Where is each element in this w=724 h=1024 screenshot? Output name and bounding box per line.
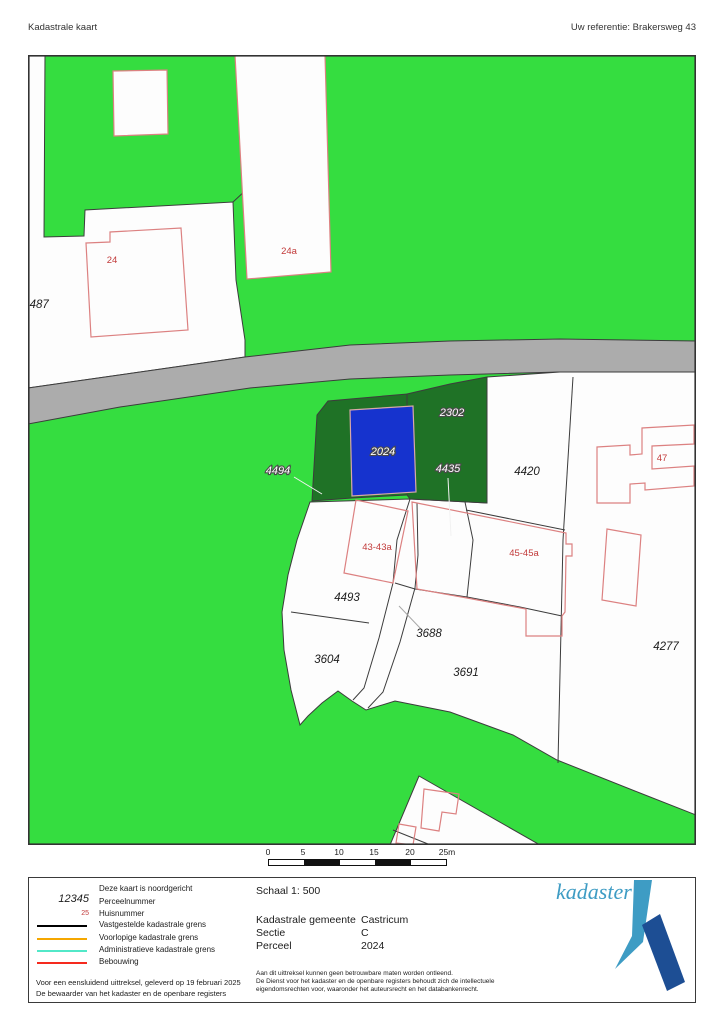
legend-label-administratief: Administratieve kadastrale grens	[99, 945, 215, 954]
north-note: Deze kaart is noordgericht	[99, 884, 192, 893]
parcel-number-sample: 12345	[49, 893, 89, 905]
parcel-number-legend: Perceelnummer	[99, 897, 155, 906]
footer-panel: Deze kaart is noordgericht 12345 Perceel…	[28, 877, 696, 1003]
scale-tick-5: 5	[301, 847, 306, 857]
parcel-2302-area	[407, 377, 487, 503]
scale-tick-0: 0	[266, 847, 271, 857]
footnote-1: Voor een eensluidend uittreksel, gelever…	[36, 978, 241, 987]
label-3604: 3604	[314, 654, 340, 666]
label-43-43a: 43-43a	[362, 542, 392, 553]
gemeente-value: Castricum	[361, 914, 408, 926]
label-45-45a: 45-45a	[509, 548, 539, 559]
label-24a: 24a	[281, 246, 298, 257]
legend-line-vastgesteld	[37, 925, 87, 927]
sectie-value: C	[361, 927, 369, 939]
label-24: 24	[107, 255, 118, 266]
label-2024: 2024	[370, 446, 395, 458]
scale-text: Schaal 1: 500	[256, 885, 320, 897]
label-47: 47	[657, 453, 668, 464]
disclaimer-line-1: Aan dit uittreksel kunnen geen betrouwba…	[256, 970, 453, 977]
kadaster-logo: kadaster	[517, 878, 695, 1001]
legend-line-administratief	[37, 950, 87, 952]
disclaimer-line-3: eigendomsrechten voor, waaronder het aut…	[256, 986, 479, 993]
sectie-label: Sectie	[256, 927, 285, 939]
gemeente-label: Kadastrale gemeente	[256, 914, 356, 926]
scale-tick-25: 25m	[439, 847, 456, 857]
legend-label-voorlopig: Voorlopige kadastrale grens	[99, 933, 198, 942]
scale-bar-graphic	[268, 859, 447, 866]
legend-label-vastgesteld: Vastgestelde kadastrale grens	[99, 920, 206, 929]
house-number-sample: 25	[49, 910, 89, 917]
label-3691: 3691	[453, 667, 479, 679]
logo-diagonal-stroke	[642, 914, 685, 991]
scale-tick-15: 15	[369, 847, 378, 857]
footnote-2: De bewaarder van het kadaster en de open…	[36, 989, 226, 998]
scale-tick-20: 20	[405, 847, 414, 857]
perceel-value: 2024	[361, 940, 384, 952]
label-3688: 3688	[416, 628, 442, 640]
label-4420: 4420	[514, 466, 540, 478]
label-4487: 4487	[28, 299, 49, 311]
cadastral-map: 4487 4420 4493 3688 3604 3691 4277 24 24…	[28, 55, 696, 845]
outbuilding	[113, 70, 168, 136]
label-2302: 2302	[439, 407, 464, 419]
disclaimer-line-2: De Dienst voor het kadaster en de openba…	[256, 978, 494, 985]
perceel-label: Perceel	[256, 940, 292, 952]
label-4435: 4435	[436, 463, 461, 475]
label-4494: 4494	[266, 465, 290, 477]
map-canvas: 4487 4420 4493 3688 3604 3691 4277 24 24…	[28, 55, 696, 845]
label-4493: 4493	[334, 592, 360, 604]
legend-label-bebouwing: Bebouwing	[99, 957, 139, 966]
cadastral-extract-page: { "header": { "title": "Kadastrale kaart…	[0, 0, 724, 1024]
scale-bar: 0 5 10 15 20 25m	[260, 847, 470, 871]
reference-text: Uw referentie: Brakersweg 43	[571, 22, 696, 33]
legend-line-voorlopig	[37, 938, 87, 940]
label-4277: 4277	[653, 641, 679, 653]
scale-tick-10: 10	[334, 847, 343, 857]
page-title: Kadastrale kaart	[28, 22, 97, 33]
legend-line-bebouwing	[37, 962, 87, 964]
kadaster-wordmark: kadaster	[556, 879, 632, 904]
house-number-legend: Huisnummer	[99, 909, 144, 918]
